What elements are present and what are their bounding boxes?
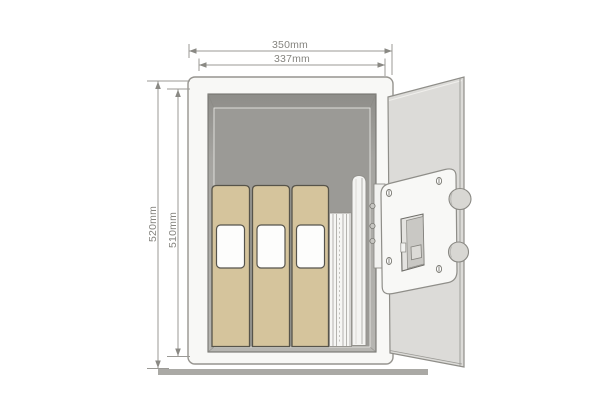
- binder-label-window: [217, 225, 245, 268]
- dim-inner-height: 510mm: [167, 89, 190, 357]
- dim-inner-width: 337mm: [199, 53, 385, 76]
- dim-label-inner-height: 510mm: [167, 212, 179, 248]
- screw-icon: [386, 189, 391, 196]
- screw-icon: [436, 265, 441, 272]
- dim-label-inner-width: 337mm: [274, 53, 310, 65]
- dim-label-outer-height: 520mm: [147, 206, 159, 242]
- compartment-button: [411, 245, 422, 260]
- dim-label-outer-width: 350mm: [272, 39, 308, 51]
- battery-compartment: [401, 214, 424, 271]
- screw-icon: [436, 177, 441, 184]
- safe-dimension-diagram: 350mm 337mm 520mm: [0, 0, 600, 420]
- paper-stack-icon: [330, 213, 352, 347]
- diagram-canvas: 350mm 337mm 520mm: [0, 0, 600, 420]
- binder-label-window: [297, 225, 325, 268]
- screw-icon: [386, 257, 391, 264]
- document-tube-icon: [352, 176, 366, 346]
- bolt-knob-icon: [449, 189, 471, 210]
- compartment-latch: [401, 243, 406, 252]
- bolt-knob-icon: [449, 242, 469, 262]
- binder-label-window: [257, 225, 285, 268]
- floor-bar: [158, 369, 428, 375]
